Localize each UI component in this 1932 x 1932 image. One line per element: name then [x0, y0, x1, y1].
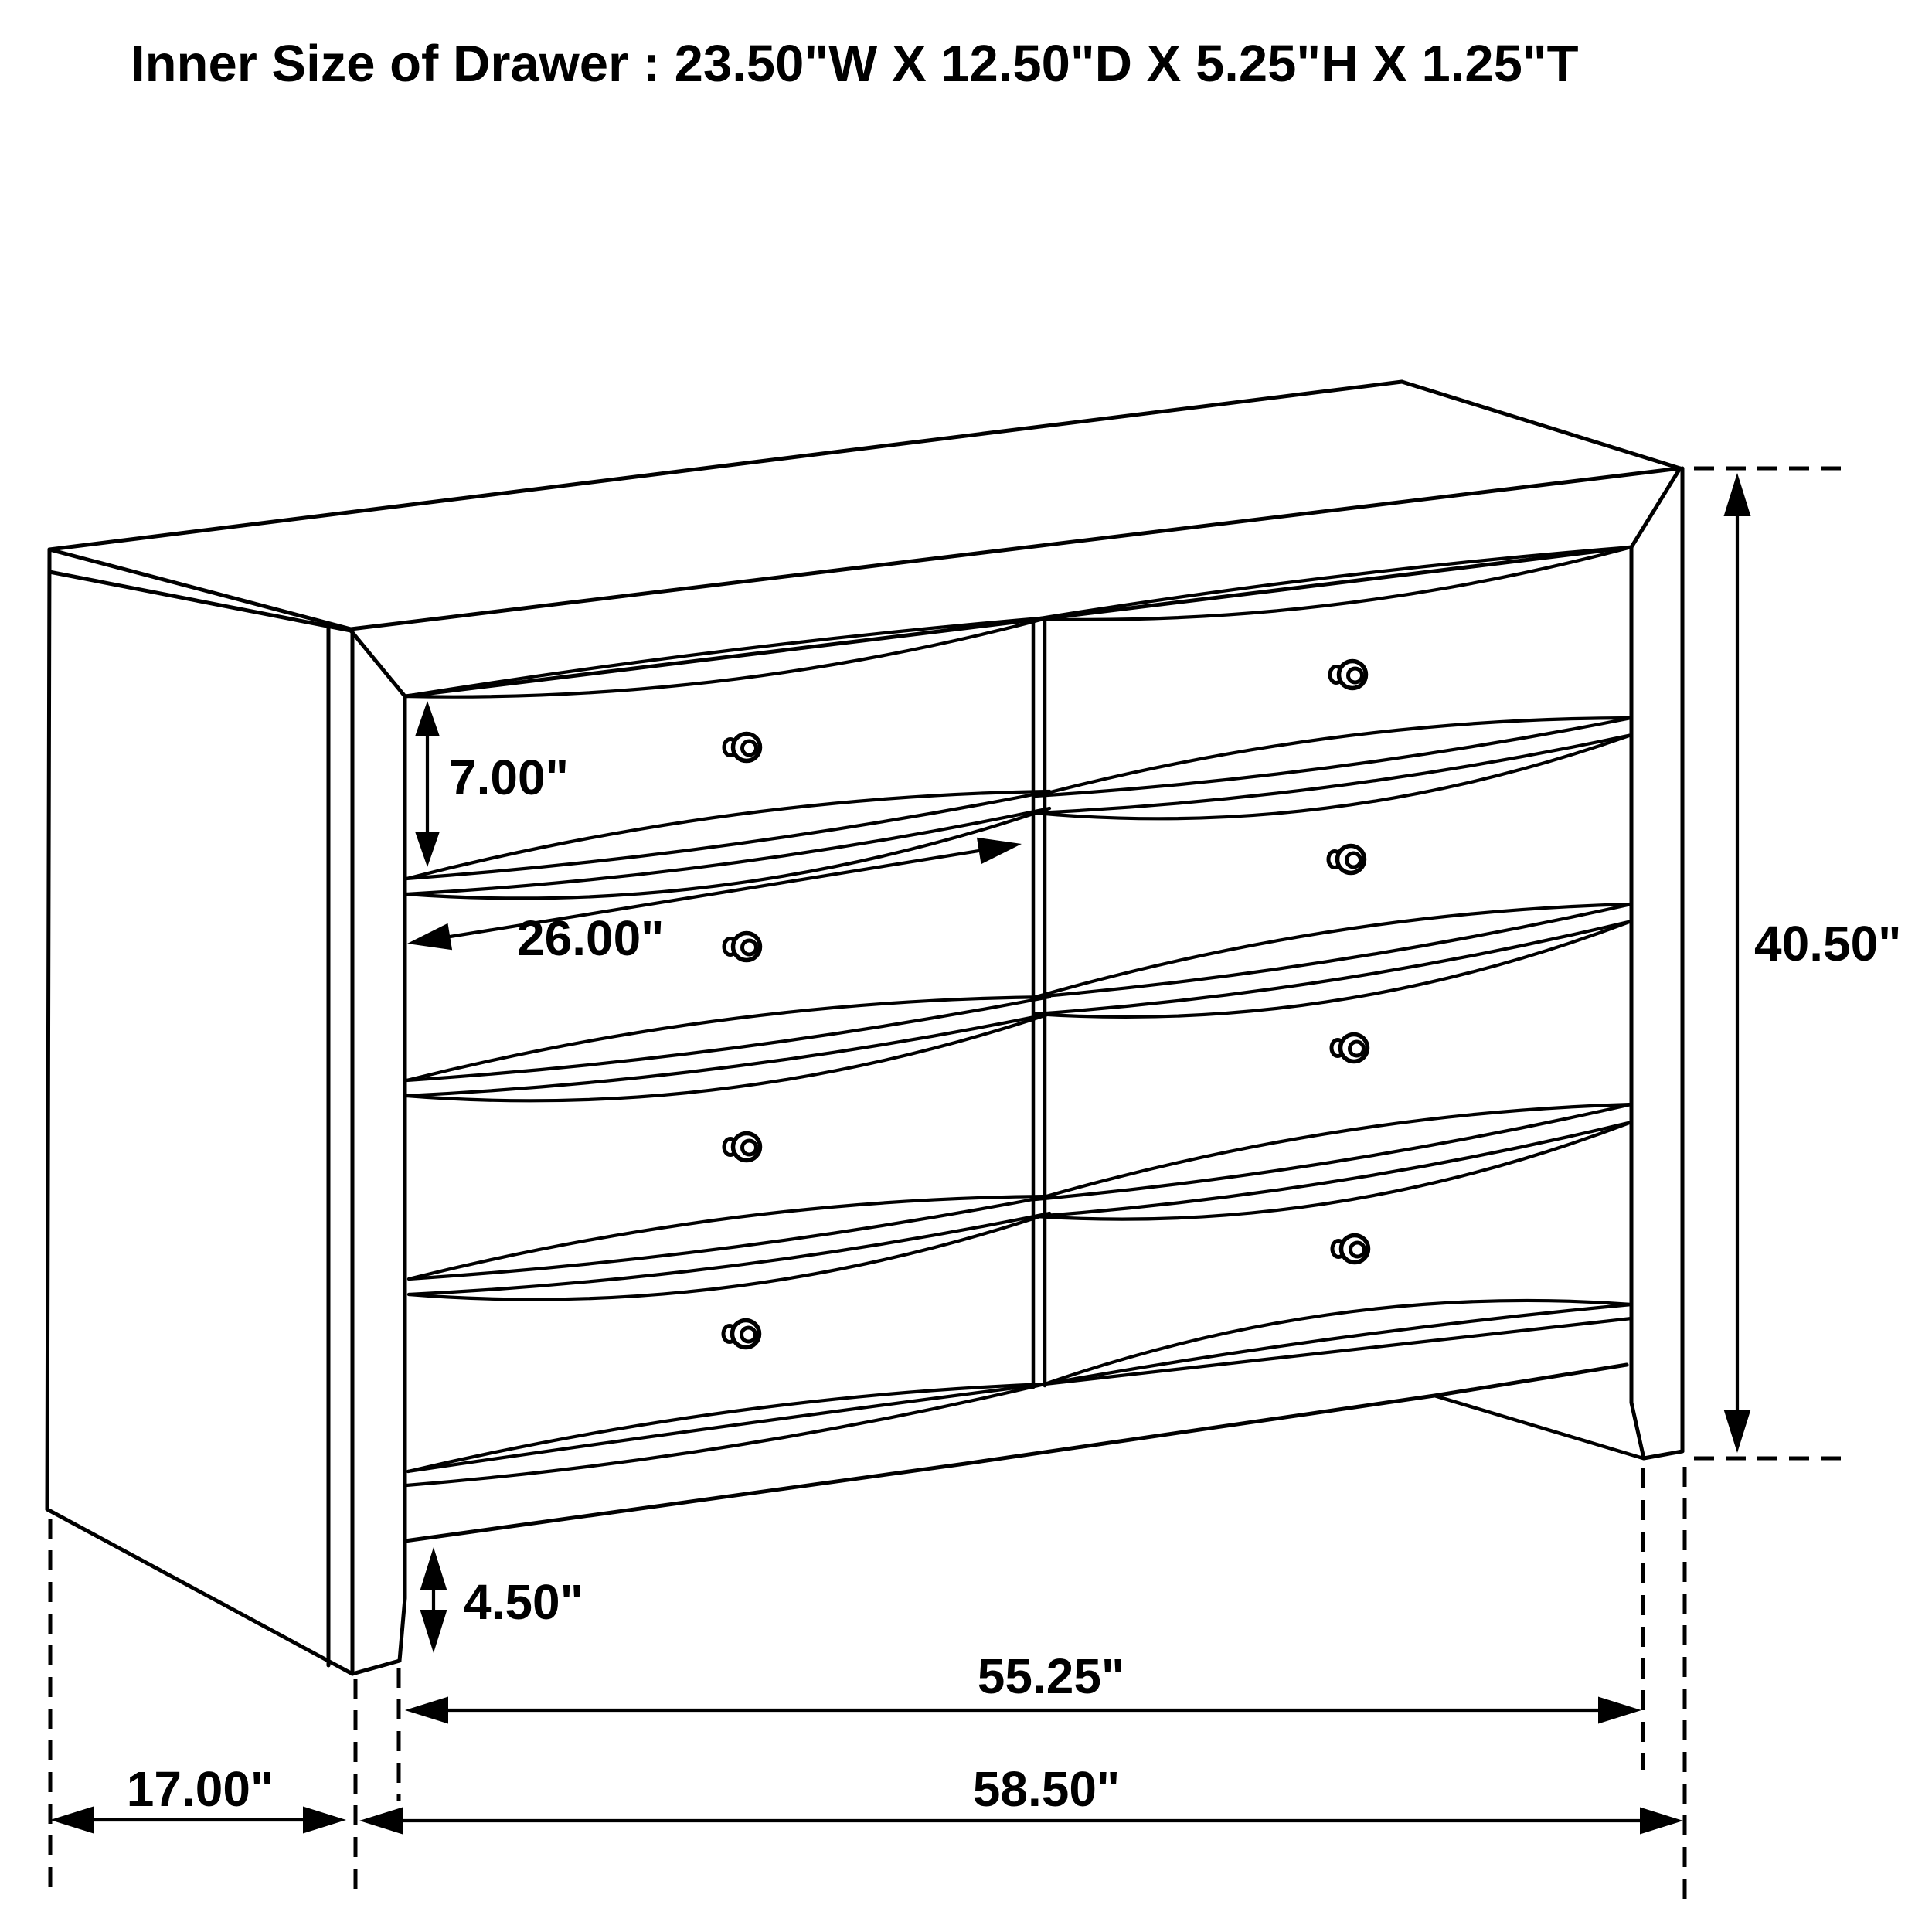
svg-text:55.25": 55.25": [978, 1648, 1125, 1704]
svg-text:26.00": 26.00": [517, 910, 665, 966]
svg-text:17.00": 17.00": [127, 1761, 274, 1817]
svg-text:7.00": 7.00": [449, 750, 569, 805]
svg-text:40.50": 40.50": [1754, 916, 1902, 971]
svg-text:58.50": 58.50": [973, 1761, 1121, 1817]
svg-text:4.50": 4.50": [464, 1574, 583, 1630]
